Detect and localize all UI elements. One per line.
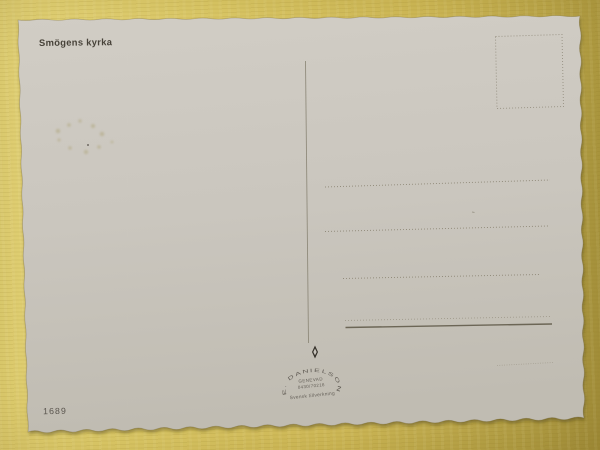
serial-number: 1689 [43, 406, 67, 416]
photo-background: Smögens kyrka E. DANIELSON AB GENEVAD 04… [0, 0, 600, 450]
tiny-mark [472, 212, 475, 213]
dark-speck [87, 144, 89, 146]
postcard [18, 16, 585, 433]
postcard-photo: Smögens kyrka E. DANIELSON AB GENEVAD 04… [0, 0, 600, 450]
caption: Smögens kyrka [39, 36, 113, 48]
